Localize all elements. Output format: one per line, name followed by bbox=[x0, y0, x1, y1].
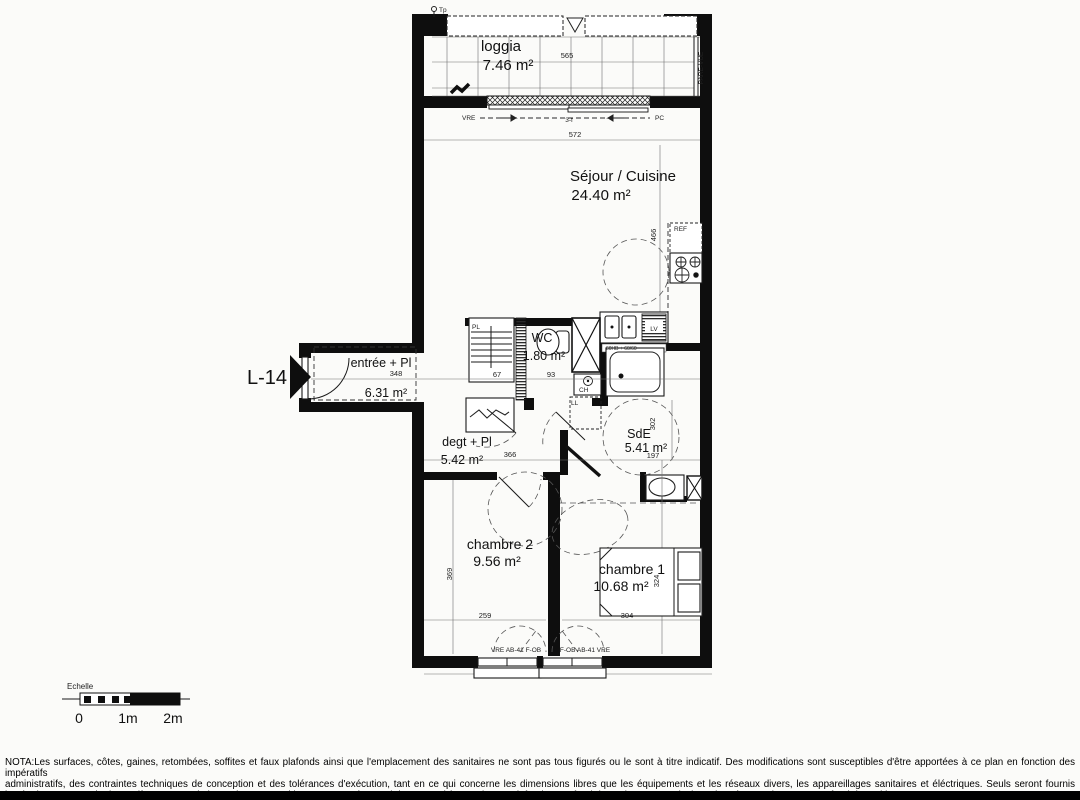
room-name-chambre2: chambre 2 bbox=[467, 536, 533, 552]
sde-door-leaf bbox=[566, 446, 600, 476]
dim-ch2-w: 259 bbox=[479, 611, 492, 620]
dim-sde-w: 197 bbox=[647, 451, 660, 460]
sliding-label: 3-f bbox=[565, 117, 573, 124]
room-area-chambre2: 9.56 m² bbox=[473, 553, 521, 569]
lv-label: LV bbox=[650, 326, 658, 333]
window-sill bbox=[539, 668, 606, 678]
slide-arrow-right bbox=[500, 115, 516, 121]
pillow bbox=[678, 584, 700, 612]
dim-sejour: 572 bbox=[569, 130, 582, 139]
pc-label: PC bbox=[655, 115, 664, 122]
tp-label: Tp bbox=[439, 7, 447, 14]
scale-bar: Echelle 0 1m 2m bbox=[62, 682, 190, 726]
room-area-sejour: 24.40 m² bbox=[571, 187, 630, 204]
room-name-wc: WC bbox=[532, 331, 553, 345]
dim-ch1-w: 304 bbox=[621, 611, 634, 620]
window-right-label: F-OB AB-41 VRE bbox=[560, 647, 611, 654]
slide-arrow-left bbox=[608, 115, 624, 121]
window-sill bbox=[474, 668, 541, 678]
rainwater-pipe-symbol bbox=[451, 84, 469, 93]
dim-kitchen: 466 bbox=[649, 229, 658, 242]
pillow bbox=[678, 552, 700, 580]
sliding-panel bbox=[568, 108, 648, 112]
floor-plan-svg: loggia 7.46 m² Séjour / Cuisine 24.40 m²… bbox=[0, 0, 1080, 800]
room-name-degt: degt + Pl bbox=[442, 435, 492, 449]
room-area-wc: 1.80 m² bbox=[523, 349, 565, 363]
bottom-black-bar bbox=[0, 791, 1080, 800]
floor-plan-page: loggia 7.46 m² Séjour / Cuisine 24.40 m²… bbox=[0, 0, 1080, 800]
scale-title: Echelle bbox=[67, 682, 94, 691]
dim-loggia: 565 bbox=[561, 51, 574, 60]
unit-label: L-14 bbox=[247, 367, 287, 389]
loggia-railing-left bbox=[447, 16, 563, 36]
loggia-railing-right bbox=[585, 16, 697, 36]
nota-line-2: administratifs, des contraintes techniqu… bbox=[5, 779, 1075, 790]
room-name-sejour: Séjour / Cuisine bbox=[570, 168, 676, 185]
pl-label: PL bbox=[472, 324, 480, 331]
pare-vue-label: PARE-VUE bbox=[698, 51, 705, 84]
dim-ch2-h: 369 bbox=[445, 568, 454, 581]
ch-label: CH bbox=[579, 387, 589, 394]
sliding-bay-threshold bbox=[487, 96, 650, 105]
room-name-loggia: loggia bbox=[481, 38, 522, 55]
dim-ch1-h: 324 bbox=[652, 575, 661, 588]
sink-code-label: 60HB + 60/60 bbox=[606, 346, 637, 352]
room-area-entree: 6.31 m² bbox=[365, 386, 407, 400]
window-left-label: VRE AB-41 F-OB bbox=[491, 647, 541, 654]
nota-line-1: NOTA:Les surfaces, côtes, gaines, retomb… bbox=[5, 757, 1075, 779]
room-area-loggia: 7.46 m² bbox=[483, 57, 534, 74]
room-area-chambre1: 10.68 m² bbox=[593, 578, 649, 594]
dim-degt: 366 bbox=[504, 450, 517, 459]
dim-entree: 348 bbox=[390, 369, 403, 378]
vre-label: VRE bbox=[462, 115, 476, 122]
dim-sde-h: 302 bbox=[648, 418, 657, 431]
room-name-chambre1: chambre 1 bbox=[599, 561, 665, 577]
scale-tick-1m: 1m bbox=[118, 710, 137, 726]
railing-joint-marker bbox=[567, 18, 583, 32]
scale-tick-2m: 2m bbox=[163, 710, 182, 726]
ref-label: REF bbox=[674, 226, 687, 233]
tp-symbol bbox=[432, 7, 437, 12]
room-name-entree: entrée + Pl bbox=[351, 356, 412, 370]
room-area-degt: 5.42 m² bbox=[441, 453, 483, 467]
scale-tick-0: 0 bbox=[75, 710, 83, 726]
shower-tray bbox=[606, 348, 664, 396]
ll-label: LL bbox=[571, 400, 579, 407]
dim-wc: 93 bbox=[547, 370, 555, 379]
sliding-panel bbox=[489, 105, 569, 109]
dim-pl: 67 bbox=[493, 370, 501, 379]
